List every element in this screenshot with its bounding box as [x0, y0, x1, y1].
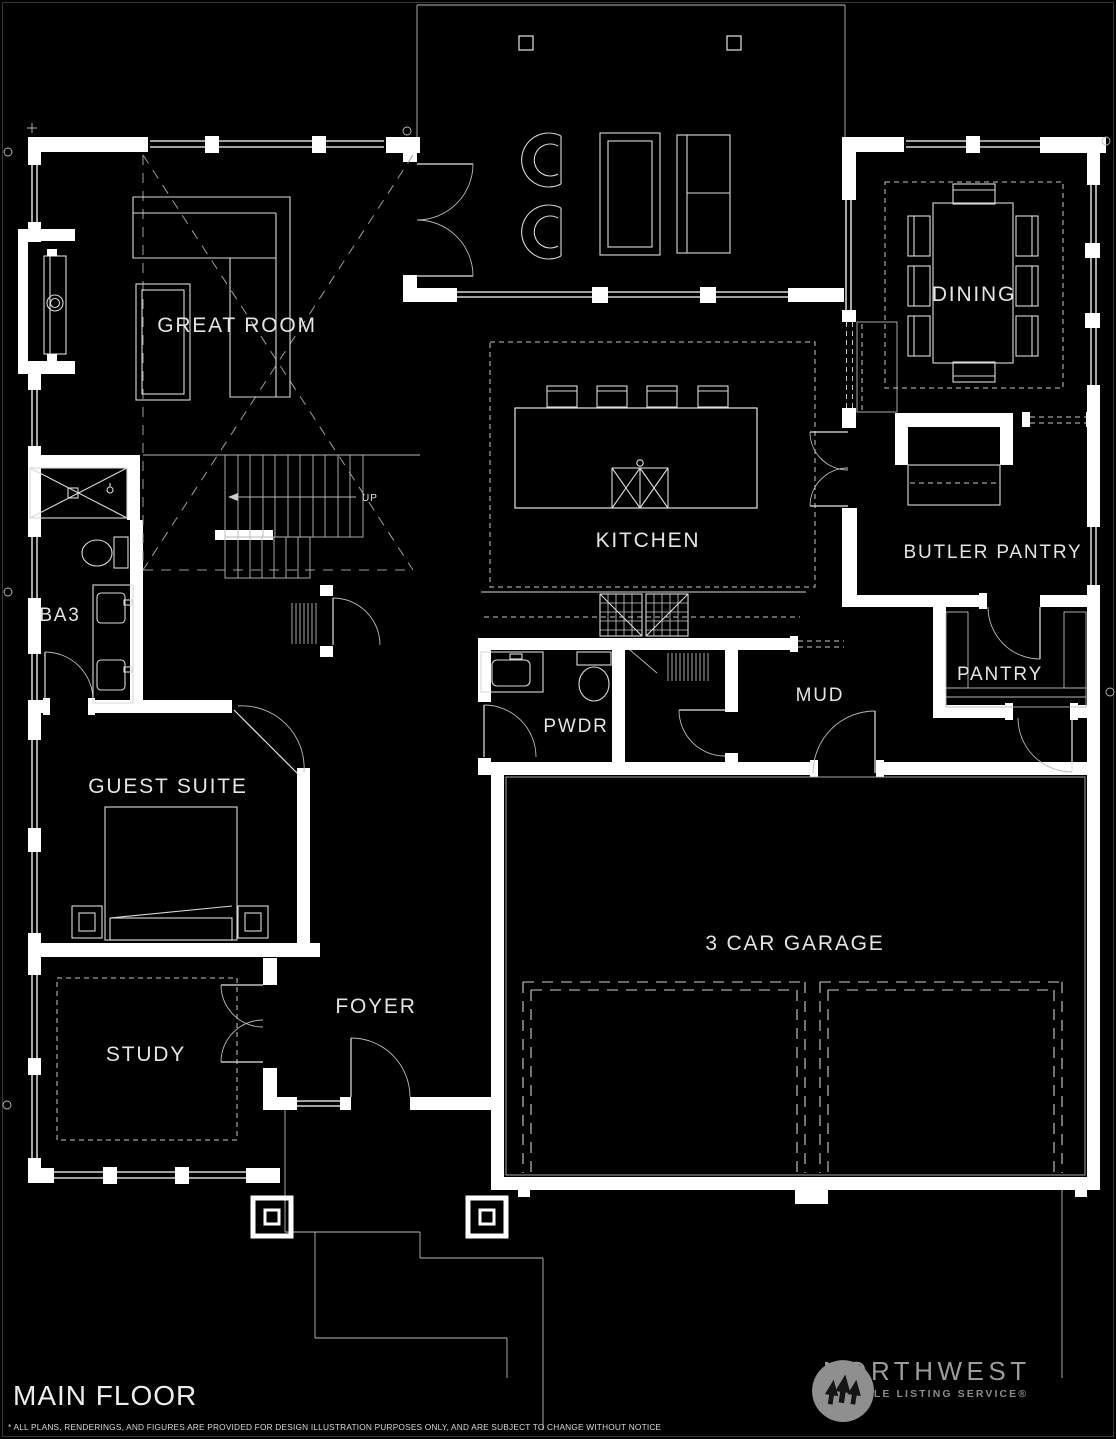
downspout-marker	[4, 588, 12, 596]
shower-head-icon	[107, 487, 113, 493]
fireplace	[44, 249, 66, 361]
patio-table	[600, 133, 660, 255]
label-kitchen: KITCHEN	[596, 529, 701, 552]
floor-plan-page: GREAT ROOM DINING KITCHEN BUTLER PANTRY …	[0, 0, 1116, 1439]
sink	[97, 593, 125, 623]
floor-plan-drawing: GREAT ROOM DINING KITCHEN BUTLER PANTRY …	[0, 0, 1116, 1439]
label-pantry: PANTRY	[957, 664, 1043, 685]
powder-fixtures	[481, 652, 611, 701]
label-stairs-up: UP	[362, 493, 378, 504]
vanity-counter	[93, 585, 133, 703]
guest-suite-furniture	[72, 807, 268, 940]
great-room-furniture	[133, 197, 290, 400]
butler-counter	[908, 465, 1000, 505]
label-powder: PWDR	[543, 716, 608, 737]
patio-chair	[522, 205, 561, 259]
staircase	[143, 455, 420, 578]
label-great-room: GREAT ROOM	[157, 314, 317, 337]
porch-column	[468, 1198, 506, 1236]
patio-furniture	[522, 133, 730, 259]
downspout-marker	[1106, 688, 1114, 696]
patio-post	[519, 36, 533, 50]
toilet-tank	[577, 652, 611, 665]
bed	[105, 807, 237, 940]
shower-drain	[68, 488, 78, 498]
downspout-marker	[4, 148, 12, 156]
three-pines-icon	[810, 1358, 876, 1424]
survey-cross-marker	[27, 123, 37, 133]
kitchen-fixtures	[481, 322, 1000, 636]
nightstand	[72, 906, 102, 938]
patio-sofa	[677, 135, 730, 253]
stair-direction-arrow	[228, 493, 238, 501]
patio-chair	[522, 133, 561, 187]
kitchen-island	[515, 408, 757, 508]
label-mud: MUD	[796, 685, 845, 706]
label-dining: DINING	[932, 283, 1016, 306]
label-garage: 3 CAR GARAGE	[705, 932, 884, 955]
patio-post	[727, 36, 741, 50]
nightstand	[238, 906, 268, 938]
toilet-bowl	[579, 667, 609, 701]
sectional-sofa	[133, 197, 290, 397]
coffee-table	[136, 284, 190, 400]
toilet-tank	[114, 537, 128, 568]
label-foyer: FOYER	[335, 995, 416, 1018]
nwmls-logo: NORTHWEST MULTIPLE LISTING SERVICE®	[810, 1358, 1031, 1400]
sink	[492, 660, 530, 686]
label-guest-suite: GUEST SUITE	[88, 775, 247, 798]
garage-details	[506, 777, 1087, 1204]
label-butler-pantry: BUTLER PANTRY	[904, 542, 1083, 563]
disclaimer-text: * ALL PLANS, RENDERINGS, AND FIGURES ARE…	[8, 1422, 661, 1432]
sink	[97, 660, 125, 690]
faucet-icon	[637, 460, 643, 466]
toilet-bowl	[82, 540, 112, 566]
page-title: MAIN FLOOR	[13, 1380, 197, 1412]
downspout-marker	[3, 1101, 11, 1109]
pantry-shelves	[946, 612, 1086, 707]
downspout-marker	[403, 127, 411, 135]
label-study: STUDY	[106, 1043, 186, 1066]
doors	[45, 164, 1072, 1097]
label-bath3: BA3	[39, 605, 80, 626]
